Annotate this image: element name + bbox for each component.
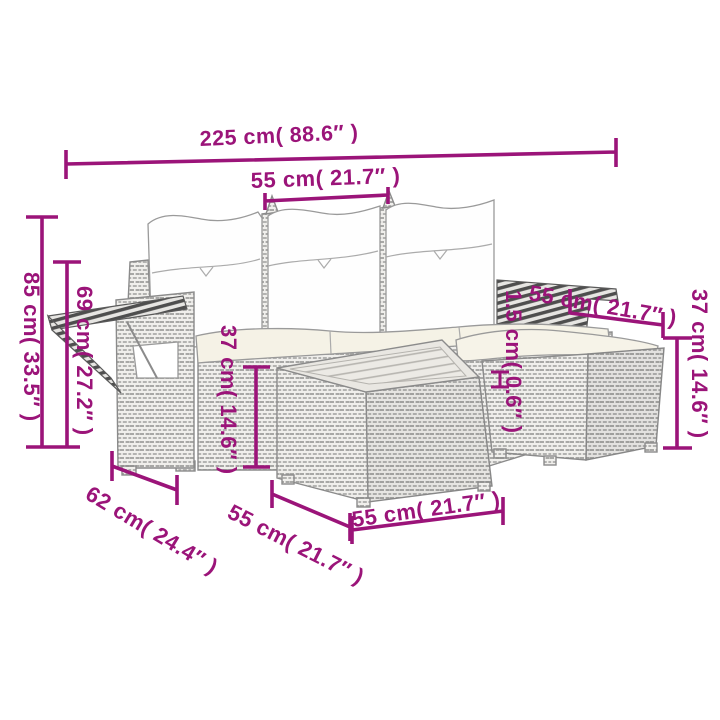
dim-backrest-height: 69 cm( 27.2″ ) <box>53 262 97 447</box>
back-cushion-middle <box>268 206 380 341</box>
footstool-foot <box>645 443 657 452</box>
table-side-right-shade <box>366 377 492 502</box>
dimension-diagram: 225 cm( 88.6″ ) 55 cm( 21.7″ ) 85 cm( 33… <box>0 0 720 720</box>
back-cushions <box>148 200 494 350</box>
dim-stool-height-label: 37 cm( 14.6″ ) <box>687 289 712 439</box>
footstool-foot <box>544 456 556 465</box>
dim-seat-width-label: 55 cm( 21.7″ ) <box>250 163 400 193</box>
coffee-table <box>277 340 492 507</box>
footstool-front <box>482 354 588 460</box>
dim-overall-width-label: 225 cm( 88.6″ ) <box>199 120 359 151</box>
furniture-diagram-canvas: 225 cm( 88.6″ ) 55 cm( 21.7″ ) 85 cm( 33… <box>0 0 720 720</box>
table-foot <box>282 475 294 484</box>
dim-seat-depth-label: 55 cm( 21.7″ ) <box>224 499 369 589</box>
dim-frame-gap-label: 1.5 cm( 0.6″ ) <box>501 290 526 434</box>
footstool-foot <box>494 449 506 458</box>
back-cushion-right <box>386 200 494 332</box>
dim-overall-height-label: 85 cm( 33.5″ ) <box>19 272 44 422</box>
dim-table-height-label: 37 cm( 14.6″ ) <box>216 325 241 475</box>
dim-armrest-depth-label: 62 cm( 24.4″ ) <box>81 481 222 579</box>
dim-backrest-height-label: 69 cm( 27.2″ ) <box>72 286 97 436</box>
dim-overall-height: 85 cm( 33.5″ ) <box>19 217 80 447</box>
